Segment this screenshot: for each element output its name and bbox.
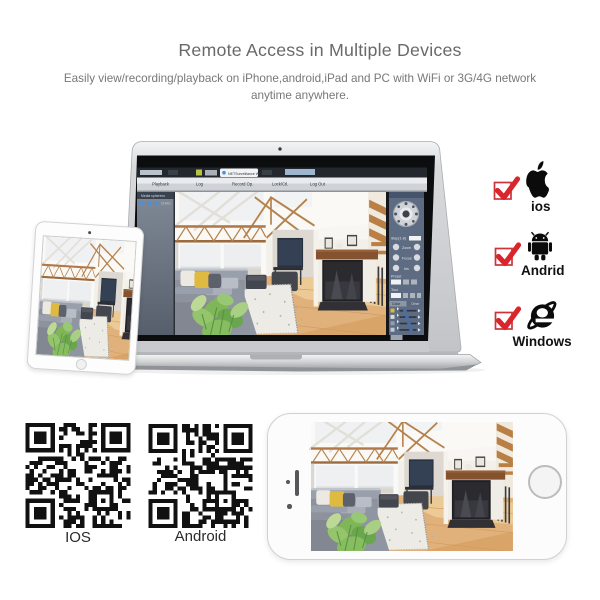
svg-text:Windows: Windows [513, 334, 572, 349]
svg-text:Other: Other [411, 302, 420, 306]
svg-text:Andrid: Andrid [521, 263, 565, 278]
svg-text:Playback: Playback [152, 182, 170, 187]
svg-text:Log: Log [196, 182, 204, 187]
svg-text:Zoom: Zoom [402, 246, 411, 250]
svg-text:ios: ios [531, 199, 551, 214]
svg-text:NETSurveillance WEB: NETSurveillance WEB [228, 172, 265, 176]
svg-text:Iris: Iris [404, 267, 409, 271]
svg-text:Media spherecs: Media spherecs [141, 194, 165, 198]
svg-text:Color: Color [392, 302, 401, 306]
svg-text:Step(1-8): Step(1-8) [391, 237, 406, 241]
svg-text:Focus: Focus [402, 256, 412, 260]
svg-text:CH001: CH001 [161, 202, 171, 206]
svg-text:Record Op.: Record Op. [232, 182, 253, 187]
svg-text:Lock/Ctl.: Lock/Ctl. [272, 182, 288, 187]
svg-text:Preset: Preset [391, 275, 401, 279]
svg-text:Log Out: Log Out [310, 182, 326, 187]
svg-text:Tour: Tour [391, 288, 399, 292]
